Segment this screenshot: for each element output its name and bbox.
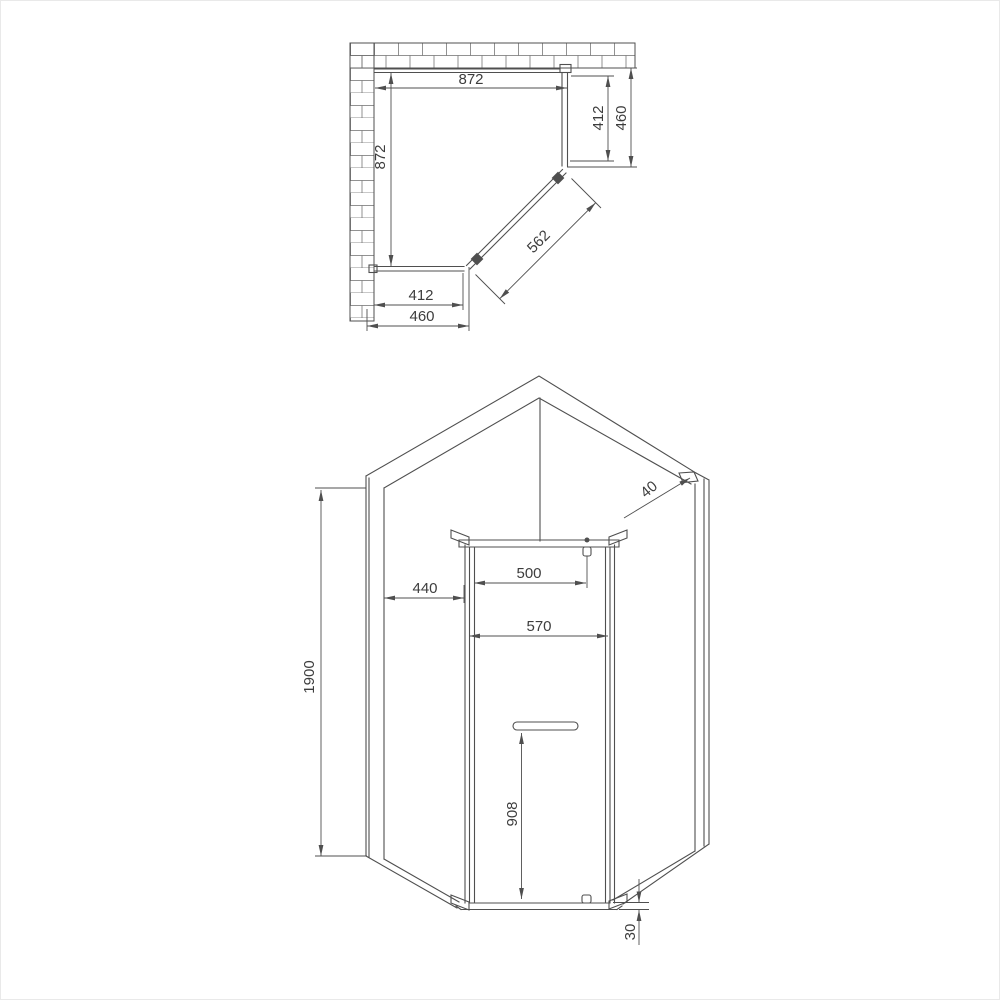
bracket-bottom-left — [451, 895, 469, 910]
dim-elev-total-height: 1900 — [301, 660, 318, 693]
dim-elev-handle-offset: 500 — [516, 565, 541, 582]
bracket-top-left — [451, 530, 469, 545]
elevation-tray — [451, 894, 627, 910]
door-handle — [513, 722, 578, 730]
dim-plan-bottom-panel-inner: 412 — [408, 287, 433, 304]
elevation-view: 40 500 440 570 1900 908 30 — [301, 376, 709, 945]
dim-plan-door-diagonal: 562 — [524, 227, 554, 257]
elevation-top-frame — [366, 376, 709, 541]
dim-elev-tray-height: 30 — [622, 924, 639, 941]
brick-wall-left — [350, 43, 374, 321]
door-stop-top — [583, 547, 591, 556]
dim-plan-top-width: 872 — [458, 71, 483, 88]
elevation-door-frame — [451, 530, 627, 903]
dim-elev-side-panel-width: 440 — [412, 580, 437, 597]
door-hinge-top — [552, 172, 565, 185]
elevation-dimensions: 40 500 440 570 1900 908 30 — [301, 478, 690, 945]
plan-dimensions: 872 872 412 460 562 412 460 — [367, 68, 637, 331]
plan-view: 872 872 412 460 562 412 460 — [350, 43, 637, 331]
brick-wall-top — [350, 43, 635, 68]
door-hinge-bottom — [471, 253, 484, 266]
dim-plan-right-panel-inner: 412 — [590, 105, 607, 130]
technical-drawing-sheet: 872 872 412 460 562 412 460 — [0, 0, 1000, 1000]
dim-plan-left-depth: 872 — [372, 144, 389, 169]
plan-right-fixed-panel — [562, 73, 568, 167]
door-roller — [585, 538, 590, 543]
frame-profile-section — [679, 472, 698, 483]
door-stop-bottom — [582, 895, 591, 903]
bracket-bottom-right — [609, 894, 627, 909]
shower-enclosure-drawing: 872 872 412 460 562 412 460 — [1, 1, 1000, 1000]
dim-plan-right-panel-outer: 460 — [613, 105, 630, 130]
dim-elev-handle-height: 908 — [504, 801, 521, 826]
plan-diagonal-door — [467, 170, 567, 270]
bracket-top-right — [609, 530, 627, 545]
plan-bottom-fixed-panel — [369, 265, 464, 273]
elevation-right-side-panel — [613, 479, 709, 904]
elevation-left-side-panel — [366, 476, 459, 908]
dim-plan-bottom-panel-outer: 460 — [409, 308, 434, 325]
dim-elev-door-width: 570 — [526, 618, 551, 635]
